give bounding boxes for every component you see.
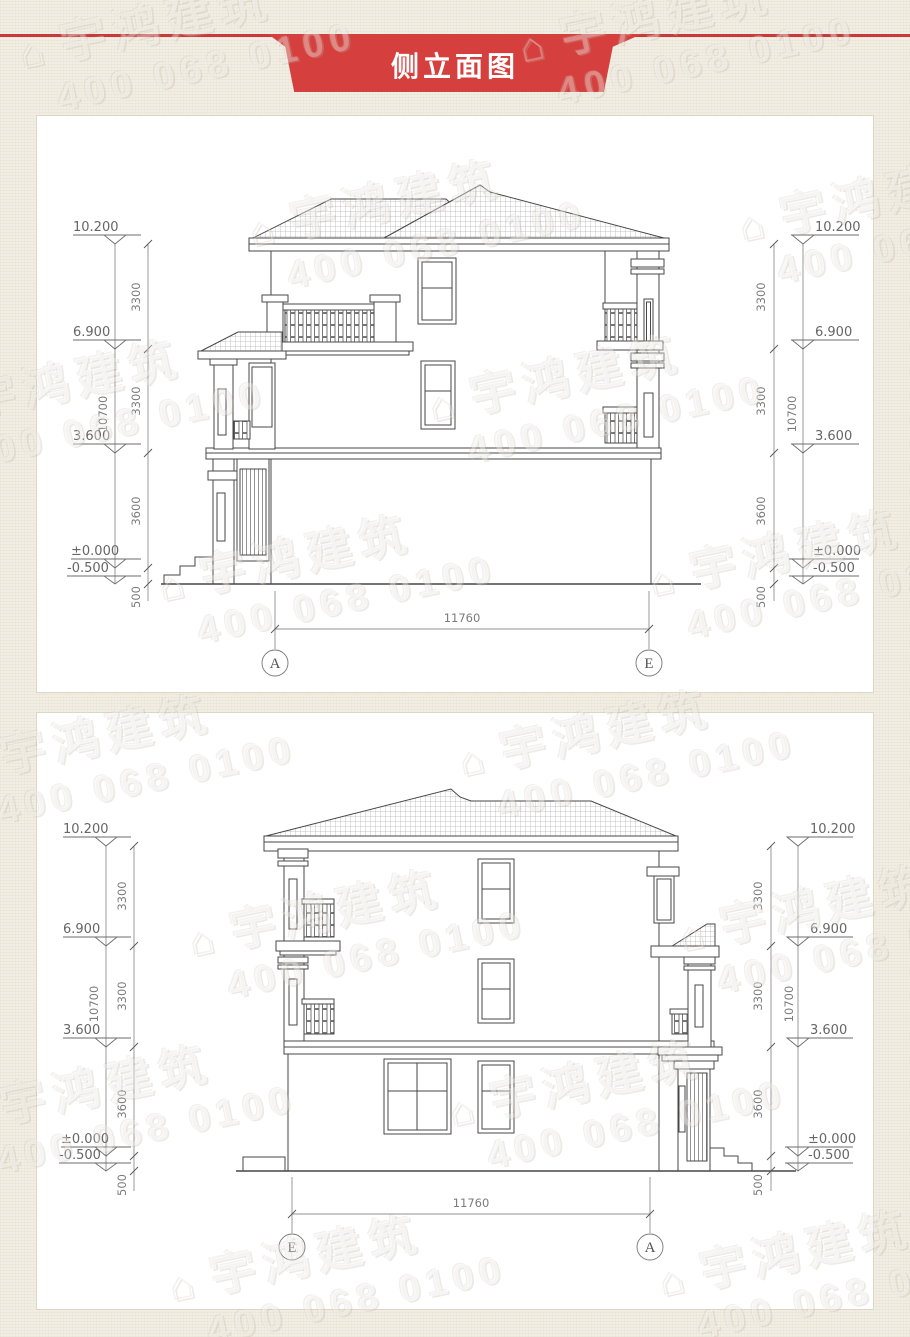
level-label: -0.500	[67, 561, 109, 576]
elevation-drawing-1: 10.200 6.900 3.600 ±0.000 -0.500 10.200 …	[37, 116, 873, 692]
dim-label: 3300	[115, 881, 129, 910]
level-label: 10.200	[815, 220, 861, 235]
level-label: 6.900	[73, 325, 110, 340]
elevation-drawing-2: 10.200 6.900 3.600 ±0.000 -0.500 10.200 …	[37, 713, 873, 1309]
floor-band	[284, 1041, 714, 1054]
level-label: ±0.000	[808, 1132, 856, 1147]
grid-bubbles	[262, 650, 662, 676]
level-label: ±0.000	[61, 1132, 109, 1147]
level-label: 10.200	[63, 822, 109, 837]
window-floor3	[418, 258, 456, 324]
building-2	[236, 789, 796, 1171]
balcony-floor3	[262, 295, 413, 355]
ground-floor-left	[164, 459, 269, 584]
right-porch	[647, 867, 752, 1171]
dim-label: 3300	[115, 981, 129, 1010]
roof	[264, 789, 678, 851]
level-label: 3.600	[810, 1023, 847, 1038]
dim-label: 500	[754, 586, 768, 608]
window-floor2	[478, 959, 514, 1023]
floor-band	[206, 448, 661, 459]
grid-label-left: E	[287, 1240, 296, 1256]
window-floor2	[421, 361, 455, 429]
window-ground-large	[384, 1059, 451, 1134]
main-wall	[271, 251, 651, 584]
dim-label: 3300	[754, 282, 768, 311]
entry-steps	[164, 557, 213, 584]
dim-label: 3300	[129, 282, 143, 311]
dim-label: 10700	[782, 986, 796, 1023]
dim-label: 3300	[751, 881, 765, 910]
dim-label: 3300	[751, 981, 765, 1010]
dim-label: 3600	[115, 1089, 129, 1118]
dim-label: 10700	[785, 396, 799, 433]
dim-label: 3300	[754, 386, 768, 415]
level-marks-right	[789, 235, 859, 584]
elevation-panel-2: 10.200 6.900 3.600 ±0.000 -0.500 10.200 …	[36, 712, 874, 1310]
grid-bubbles	[279, 1234, 663, 1260]
page: 侧立面图	[0, 0, 910, 1337]
roof	[249, 185, 669, 251]
building-1	[161, 185, 701, 584]
dim-label: 10700	[87, 986, 101, 1023]
left-stoop	[243, 1157, 285, 1171]
level-label: 3.600	[63, 1023, 100, 1038]
dim-label: 3300	[129, 386, 143, 415]
title-banner: 侧立面图	[268, 34, 642, 92]
dim-label: 500	[115, 1174, 129, 1196]
entry-steps	[710, 1148, 752, 1171]
dim-label: 10700	[96, 396, 110, 433]
level-label: ±0.000	[71, 544, 119, 559]
span-dim-label: 11760	[444, 611, 481, 625]
window-floor3	[478, 859, 514, 923]
grid-label-right: E	[644, 656, 653, 672]
level-label: 6.900	[63, 922, 100, 937]
level-label: 10.200	[810, 822, 856, 837]
dim-label: 500	[751, 1174, 765, 1196]
main-wall	[288, 851, 659, 1171]
level-label: 6.900	[815, 325, 852, 340]
level-label: 10.200	[73, 220, 119, 235]
dim-label: 3600	[754, 496, 768, 525]
elevation-panel-1: 10.200 6.900 3.600 ±0.000 -0.500 10.200 …	[36, 115, 874, 693]
level-label: -0.500	[813, 561, 855, 576]
level-label: -0.500	[808, 1148, 850, 1163]
window-ground-small	[478, 1061, 514, 1133]
level-label: 3.600	[815, 429, 852, 444]
porch	[198, 332, 286, 449]
span-dim-label: 11760	[453, 1196, 490, 1210]
dim-label: 3600	[751, 1089, 765, 1118]
level-label: ±0.000	[813, 544, 861, 559]
dim-label: 3600	[129, 496, 143, 525]
level-label: -0.500	[59, 1148, 101, 1163]
grid-label-left: A	[270, 656, 281, 672]
page-title: 侧立面图	[391, 41, 519, 85]
level-label: 6.900	[810, 922, 847, 937]
grid-label-right: A	[645, 1240, 656, 1256]
dim-label: 500	[129, 586, 143, 608]
